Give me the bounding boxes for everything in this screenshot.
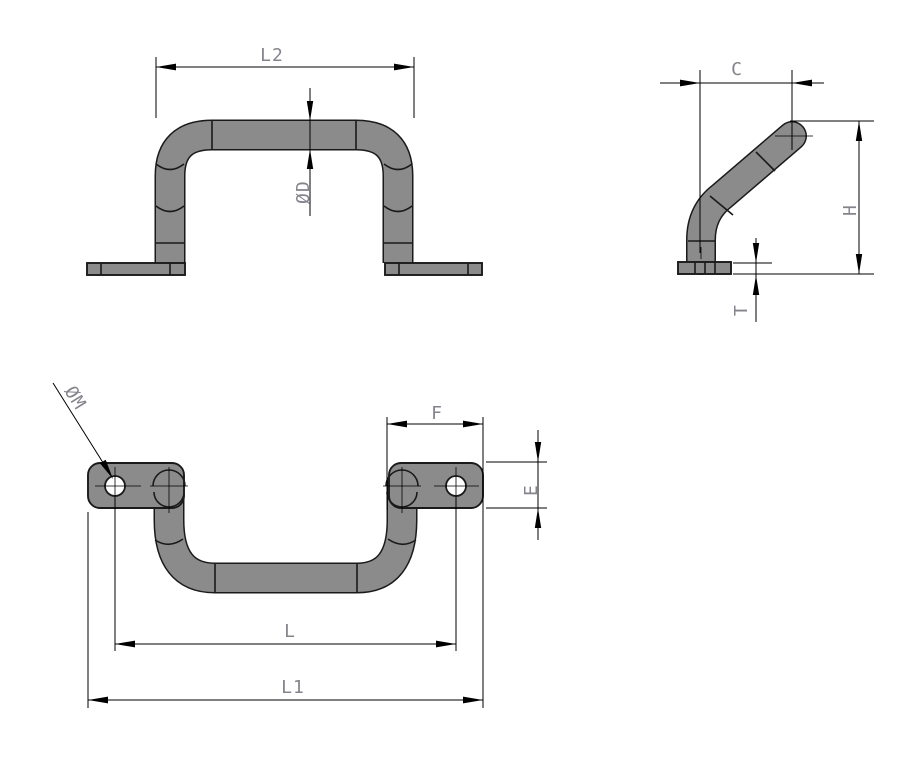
arrowhead bbox=[115, 641, 135, 648]
arrowhead bbox=[792, 80, 812, 87]
dim-label-e: E bbox=[521, 484, 542, 496]
drawing-sheet: L2 ØD C bbox=[0, 0, 900, 769]
dim-label-l1: L1 bbox=[281, 677, 305, 698]
side-view: C H T bbox=[660, 59, 874, 322]
handle-front-outline bbox=[170, 135, 398, 263]
arrowhead bbox=[856, 254, 862, 274]
arrowhead bbox=[394, 64, 414, 71]
arrowhead bbox=[753, 275, 759, 295]
arrowhead bbox=[463, 697, 483, 704]
dimension-c: C bbox=[660, 59, 824, 253]
dim-label-l: L bbox=[284, 621, 296, 642]
dimension-e: E bbox=[486, 430, 547, 540]
handle-front-body bbox=[170, 135, 398, 263]
arrowhead bbox=[535, 508, 541, 528]
arrowhead bbox=[307, 101, 313, 121]
arrowhead bbox=[88, 697, 108, 704]
dimension-l2: L2 bbox=[156, 45, 414, 118]
dim-label-t: T bbox=[731, 304, 752, 316]
arrowhead bbox=[535, 442, 541, 462]
arrowhead bbox=[307, 149, 313, 169]
dim-label-d: ØD bbox=[293, 180, 314, 204]
arrowhead bbox=[856, 121, 862, 141]
dim-label-c: C bbox=[731, 59, 743, 80]
dim-label-m: ØM bbox=[60, 383, 90, 414]
dim-label-f: F bbox=[431, 403, 443, 424]
arrowhead bbox=[753, 243, 759, 263]
dimension-m: ØM bbox=[53, 383, 113, 479]
dim-label-l2: L2 bbox=[260, 45, 284, 66]
arrowhead bbox=[463, 421, 483, 428]
arrowhead bbox=[436, 641, 456, 648]
dimension-t: T bbox=[731, 238, 772, 322]
dim-label-h: H bbox=[840, 204, 861, 216]
arrowhead bbox=[156, 64, 176, 71]
front-view: L2 ØD bbox=[87, 45, 482, 275]
arrowhead bbox=[680, 80, 700, 87]
top-view: ØM F E L bbox=[53, 383, 547, 708]
drawing-canvas: L2 ØD C bbox=[0, 0, 900, 769]
arrowhead bbox=[387, 421, 407, 428]
dimension-d: ØD bbox=[293, 88, 314, 216]
